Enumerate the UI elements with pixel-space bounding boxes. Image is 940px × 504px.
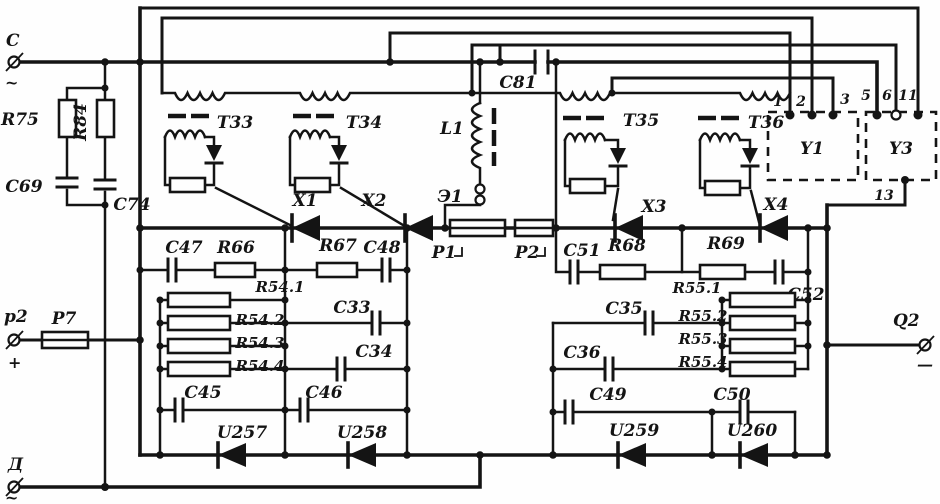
gate-network-x4 — [700, 134, 759, 223]
x4-gate-lead — [751, 191, 759, 222]
x4-label: X4 — [762, 195, 788, 215]
pin-1-dot — [786, 111, 795, 120]
r75-label: R75 — [0, 110, 39, 130]
shunt-p1 — [450, 220, 505, 236]
resistor-r68 — [600, 265, 645, 279]
shunt-p2 — [515, 220, 553, 236]
r66-label: R66 — [216, 238, 255, 258]
c35-label: C35 — [605, 299, 642, 319]
x1-label: X1 — [291, 191, 317, 211]
pin-2-label: 2 — [795, 94, 806, 110]
p1-label: P1 — [431, 243, 457, 263]
terminal-q2-label: Q2 — [893, 311, 920, 331]
c74-plates — [95, 180, 115, 189]
c36-plates — [605, 358, 613, 380]
c47-plates — [168, 259, 176, 281]
pin-1-label: 1 — [773, 94, 783, 110]
c36-label: C36 — [563, 343, 600, 363]
resistor-r84 — [97, 100, 114, 137]
r54-2-label: R54.2 — [235, 311, 285, 329]
terminal-p2-plus: + — [8, 353, 21, 372]
r54-3-label: R54.3 — [235, 334, 285, 352]
r67-label: R67 — [318, 236, 357, 256]
shunt-p7 — [42, 332, 88, 348]
r69-label: R69 — [706, 234, 745, 254]
y3-label: Y3 — [889, 139, 913, 159]
primary-bus — [162, 93, 790, 100]
pin-13-dot — [901, 176, 909, 184]
e1-contact-top — [476, 185, 485, 194]
pin-13-label: 13 — [874, 188, 894, 204]
x1-gate-resistor — [170, 178, 205, 192]
t33-label: T33 — [217, 113, 253, 133]
p2-shunt-label: P2 — [514, 243, 540, 263]
c33-label: C33 — [333, 298, 370, 318]
c50-label: C50 — [713, 385, 750, 405]
resistor-r66 — [215, 263, 255, 277]
thyristor-x1 — [292, 215, 320, 241]
x2-label: X2 — [360, 191, 386, 211]
l1-label: L1 — [439, 119, 464, 139]
pin-6-label: 6 — [882, 88, 892, 104]
x1-gate-diode — [206, 145, 222, 161]
c51-label: C51 — [563, 241, 600, 261]
x2-gate-diode — [331, 145, 347, 161]
p7-label: P7 — [51, 309, 77, 329]
c52-plates — [775, 261, 783, 283]
resistor-r69 — [700, 265, 745, 279]
c33-plates — [372, 312, 380, 334]
e1-label: Э1 — [437, 187, 462, 207]
x4-gate-diode — [742, 148, 758, 164]
t35-label: T35 — [623, 111, 659, 131]
r55-1-label: R55.1 — [672, 279, 722, 297]
r84-label: R84 — [71, 103, 91, 142]
x3-label: X3 — [640, 197, 666, 217]
c69-label: C69 — [5, 177, 42, 197]
pin-5-dot — [873, 111, 882, 120]
pin-6-dot — [892, 111, 901, 120]
c47-label: C47 — [165, 238, 202, 258]
c69-plates — [57, 178, 77, 187]
terminal-c-label: C — [6, 31, 20, 51]
c48-plates — [382, 259, 390, 281]
gate-network-x1 — [165, 131, 290, 226]
terminal-d-wave: ~ — [5, 488, 18, 504]
diode-u258 — [348, 443, 376, 467]
c46-label: C46 — [305, 383, 342, 403]
c45-label: C45 — [184, 383, 221, 403]
c49-plates — [565, 401, 573, 423]
pin-11-label: 11 — [898, 88, 917, 104]
schematic-scan: C ~ R75 R84 C69 C74 C81 T33 T34 T35 T36 — [0, 0, 940, 504]
terminal-d-label: Д — [7, 455, 24, 475]
u258-label: U258 — [337, 423, 387, 443]
c51-plates — [570, 261, 578, 283]
c48-label: C48 — [363, 238, 400, 258]
pin-11-dot — [914, 111, 923, 120]
terminal-q2-minus: — — [917, 355, 933, 374]
r54-1-label: R54.1 — [255, 278, 305, 296]
y1-label: Y1 — [800, 139, 824, 159]
u259-label: U259 — [609, 421, 659, 441]
schematic-canvas: C ~ R75 R84 C69 C74 C81 T33 T34 T35 T36 — [0, 0, 940, 504]
pin-2-dot — [808, 111, 817, 120]
c34-plates — [337, 358, 345, 380]
pin-3-label: 3 — [840, 92, 850, 108]
u257-label: U257 — [217, 423, 267, 443]
phase-c-line — [14, 62, 877, 112]
x3-gate-resistor — [570, 179, 605, 193]
diode-u257 — [218, 443, 246, 467]
r68-label: R68 — [607, 236, 646, 256]
pin-5-label: 5 — [861, 88, 871, 104]
e1-contact-bottom — [476, 196, 485, 205]
r55-stack — [722, 293, 808, 376]
c45-plates — [175, 399, 183, 421]
r54-4-label: R54.4 — [235, 357, 285, 375]
diode-u259 — [618, 443, 646, 467]
c81-plates — [535, 51, 548, 73]
x1-gate-lead — [216, 188, 290, 225]
c81-label: C81 — [499, 73, 536, 93]
t34-label: T34 — [346, 113, 382, 133]
c35-plates — [645, 312, 653, 334]
resistor-r67 — [317, 263, 357, 277]
x2-gate-resistor — [295, 178, 330, 192]
terminal-c-wave: ~ — [5, 73, 18, 92]
diode-u260 — [740, 443, 768, 467]
thyristor-x4 — [760, 215, 788, 241]
terminal-p2-label: p2 — [4, 307, 28, 327]
gate-network-x3 — [565, 134, 626, 221]
x4-gate-resistor — [705, 181, 740, 195]
u260-label: U260 — [727, 421, 777, 441]
c74-label: C74 — [113, 195, 150, 215]
c34-label: C34 — [355, 342, 392, 362]
t36-label: T36 — [748, 113, 784, 133]
bottom-rail — [14, 455, 480, 487]
pin-3-dot — [829, 111, 838, 120]
c49-label: C49 — [589, 385, 626, 405]
x3-gate-diode — [610, 148, 626, 164]
